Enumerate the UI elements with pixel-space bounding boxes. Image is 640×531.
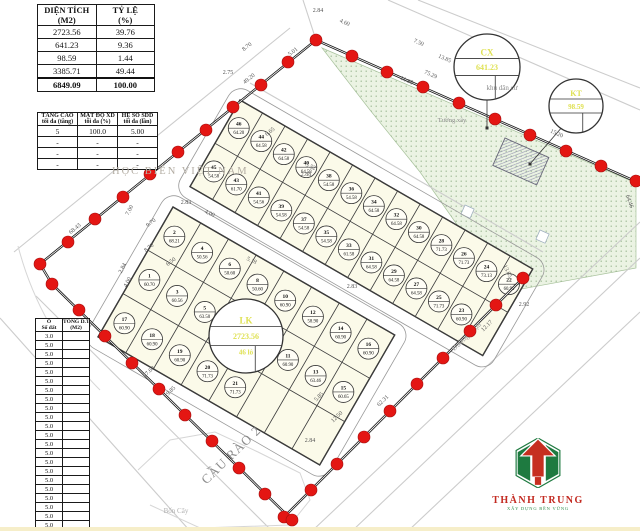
lot-label: 160.70 (139, 269, 160, 290)
table-cell: 5.0 (36, 368, 63, 377)
svg-text:71.73: 71.73 (459, 261, 470, 266)
svg-text:60.90: 60.90 (280, 304, 291, 309)
street-label: khu dân cư (486, 84, 517, 92)
lot-label: 360.56 (167, 285, 188, 306)
boundary-dot (489, 113, 501, 125)
svg-text:30: 30 (416, 226, 422, 232)
table-cell (63, 341, 90, 350)
svg-text:42: 42 (281, 148, 287, 154)
table-cell: 5.0 (36, 476, 63, 485)
lot-label: 3754.58 (293, 213, 314, 234)
boundary-dot (437, 352, 449, 364)
svg-text:64.58: 64.58 (368, 209, 379, 214)
svg-text:KT: KT (570, 89, 582, 98)
boundary-dot (200, 124, 212, 136)
table-cell (63, 386, 90, 395)
svg-text:50.56: 50.56 (197, 256, 208, 261)
table-row: --- (38, 137, 158, 148)
table-cell: 5.0 (36, 512, 63, 521)
table-row: 5.0 (36, 512, 90, 521)
table-cell: 6849.09 (38, 78, 97, 92)
svg-text:3: 3 (176, 289, 179, 295)
table-cell: 100.00 (96, 78, 155, 92)
table-row: 5.0 (36, 485, 90, 494)
table-cell (63, 458, 90, 467)
boundary-dot (233, 462, 245, 474)
svg-text:39: 39 (279, 204, 285, 210)
table-cell (63, 359, 90, 368)
table-cell: 5.0 (36, 422, 63, 431)
table-row: 5.0 (36, 377, 90, 386)
svg-text:68.21: 68.21 (169, 240, 180, 245)
column-header: TỔNG D.TÍCH(M2) (63, 319, 90, 332)
table-cell: 5.0 (36, 440, 63, 449)
lot-label: 4664.20 (228, 118, 249, 139)
svg-text:60.90: 60.90 (283, 363, 294, 368)
dimension-label: 75.29 (423, 70, 438, 81)
table-cell: - (78, 137, 118, 148)
column-header: DIỆN TÍCH(M2) (38, 5, 97, 26)
table-cell: 5.0 (36, 485, 63, 494)
dimension-label: 2.84 (305, 438, 316, 444)
svg-text:44: 44 (259, 135, 265, 141)
lot-label: 2671.73 (453, 248, 474, 269)
table-row: 641.239.36 (38, 39, 155, 52)
svg-text:64.58: 64.58 (388, 278, 399, 283)
svg-text:33: 33 (346, 243, 352, 249)
boundary-dot (524, 129, 536, 141)
street-label: CẦU RÀO 2 (198, 423, 264, 487)
svg-text:LK: LK (239, 315, 252, 325)
svg-text:71.73: 71.73 (434, 304, 445, 309)
road-line (418, 0, 640, 88)
svg-text:60.90: 60.90 (174, 358, 185, 363)
table-cell: 5.00 (118, 126, 158, 137)
svg-text:27: 27 (414, 282, 420, 288)
lot-label: 2571.73 (428, 291, 449, 312)
bottom-strip (0, 527, 640, 531)
table-row: 5.0 (36, 494, 90, 503)
svg-text:18: 18 (149, 333, 155, 339)
svg-text:60.90: 60.90 (335, 336, 346, 341)
svg-text:32: 32 (394, 213, 400, 219)
table-row: 5.0 (36, 422, 90, 431)
boundary-dot (153, 383, 165, 395)
table-cell: 5.0 (36, 404, 63, 413)
boundary-dot (305, 484, 317, 496)
logo-tagline: XÂY DỰNG BỀN VỮNG (478, 506, 598, 511)
boundary-dot (282, 56, 294, 68)
svg-text:CX: CX (481, 47, 494, 57)
dimension-label: 7.50 (412, 38, 424, 48)
svg-text:20: 20 (205, 365, 211, 371)
boundary-dot (126, 357, 138, 369)
table-row: 5.0 (36, 440, 90, 449)
lot-label: 2171.73 (225, 377, 246, 398)
boundary-dot (172, 146, 184, 158)
column-header: ÔSố đất (36, 319, 63, 332)
svg-text:46: 46 (236, 122, 242, 128)
lot-label: 4154.56 (248, 187, 269, 208)
svg-text:71.73: 71.73 (436, 248, 447, 253)
svg-text:14: 14 (338, 326, 344, 332)
boundary-dot (453, 97, 465, 109)
svg-text:61.58: 61.58 (343, 252, 354, 257)
table-cell (63, 431, 90, 440)
lot-label: 1060.90 (275, 290, 296, 311)
lot-label: 3654.58 (341, 183, 362, 204)
table-cell: - (118, 137, 158, 148)
lot-label: 850.60 (247, 274, 268, 295)
svg-text:16: 16 (366, 342, 372, 348)
dimension-label: 2.84 (118, 262, 128, 274)
table-row: 5.0 (36, 503, 90, 512)
svg-text:43: 43 (234, 178, 240, 184)
svg-text:31: 31 (369, 256, 375, 262)
table-cell: 5.0 (36, 341, 63, 350)
table-total-row: 6849.09100.00 (38, 78, 155, 92)
table-row: 5.0 (36, 359, 90, 368)
dimension-label: 9.70 (145, 218, 157, 229)
svg-text:41: 41 (256, 191, 262, 197)
svg-text:64.58: 64.58 (366, 265, 377, 270)
dimension-label: 8.70 (241, 42, 253, 53)
svg-text:54.56: 54.56 (253, 200, 264, 205)
table-cell: 5.0 (36, 458, 63, 467)
lot-label: 1560.65 (333, 381, 354, 402)
svg-text:4: 4 (201, 246, 204, 252)
lot-label: 2964.58 (383, 265, 404, 286)
boundary-dot (179, 409, 191, 421)
boundary-dot (89, 213, 101, 225)
svg-text:60.70: 60.70 (144, 283, 155, 288)
svg-text:60.56: 60.56 (172, 299, 183, 304)
table-cell: 641.23 (38, 39, 97, 52)
table-row: 5.0 (36, 458, 90, 467)
svg-text:64.58: 64.58 (256, 144, 267, 149)
lot-label: 3464.58 (363, 196, 384, 217)
svg-text:64.58: 64.58 (278, 157, 289, 162)
svg-text:29: 29 (391, 269, 397, 275)
planning-table: TẦNG CAOtối đa (tầng)MẬT ĐỘ XDtối đa (%)… (37, 112, 158, 170)
svg-text:23: 23 (459, 308, 465, 314)
table-cell: 3385.71 (38, 65, 97, 79)
table-cell: 5.0 (36, 413, 63, 422)
svg-text:6: 6 (228, 262, 231, 268)
boundary-dot (384, 405, 396, 417)
column-header: MẬT ĐỘ XDtối đa (%) (78, 113, 118, 126)
table-row: --- (38, 148, 158, 159)
boundary-dot (381, 66, 393, 78)
table-cell (63, 476, 90, 485)
svg-text:2: 2 (173, 230, 176, 236)
svg-text:60.90: 60.90 (363, 352, 374, 357)
lot-label: 3361.58 (338, 239, 359, 260)
table-cell: 5.0 (36, 431, 63, 440)
table-cell: 5 (38, 126, 78, 137)
dimension-label: 13.85 (437, 54, 452, 65)
svg-text:13: 13 (313, 369, 319, 375)
svg-text:38: 38 (326, 174, 332, 180)
table-cell (63, 503, 90, 512)
boundary-dot (517, 272, 529, 284)
table-cell: 5.0 (36, 377, 63, 386)
table-cell: 5.0 (36, 449, 63, 458)
boundary-dot (286, 514, 298, 526)
svg-text:15: 15 (341, 385, 347, 391)
table-cell: - (38, 148, 78, 159)
table-cell: 5.0 (36, 503, 63, 512)
kt-circle: KT98.59 (549, 79, 603, 133)
table-row: 5.0 (36, 431, 90, 440)
table-cell (63, 368, 90, 377)
table-cell (63, 413, 90, 422)
table-row: 5.0 (36, 350, 90, 359)
svg-text:25: 25 (436, 295, 442, 301)
boundary-dot (46, 278, 58, 290)
table-cell (63, 512, 90, 521)
boundary-dot (227, 101, 239, 113)
table-cell (63, 332, 90, 341)
svg-text:50.60: 50.60 (224, 272, 235, 277)
lot-label: 1760.90 (114, 313, 135, 334)
boundary-dot (464, 325, 476, 337)
dimension-label: 49.20 (242, 73, 256, 86)
table-cell: 5.0 (36, 350, 63, 359)
svg-text:34: 34 (371, 200, 377, 206)
lot-label: 2360.90 (451, 304, 472, 325)
table-cell: 5.0 (36, 395, 63, 404)
dimension-label: 2.75 (223, 70, 234, 76)
dimension-label: 4.00 (203, 209, 215, 219)
svg-text:11: 11 (285, 353, 290, 359)
dimension-label: 2.83 (181, 200, 192, 206)
table-cell: - (38, 159, 78, 170)
svg-text:54.58: 54.58 (298, 226, 309, 231)
dimension-label: 2.92 (519, 302, 530, 308)
boundary-dot (346, 50, 358, 62)
dimension-label: 4.60 (338, 18, 350, 28)
svg-text:24: 24 (484, 265, 490, 271)
lot-label: 2473.13 (476, 261, 497, 282)
road-line (303, 0, 316, 40)
svg-text:63.46: 63.46 (310, 379, 321, 384)
boundary-dot (411, 378, 423, 390)
table-cell (63, 485, 90, 494)
lot-label: 4361.70 (226, 174, 247, 195)
boundary-dot (34, 258, 46, 270)
svg-text:54.58: 54.58 (323, 183, 334, 188)
svg-text:61.70: 61.70 (231, 187, 242, 192)
svg-text:60.90: 60.90 (147, 342, 158, 347)
table-row: 5.0 (36, 467, 90, 476)
svg-text:21: 21 (232, 381, 238, 387)
boundary-dot (255, 79, 267, 91)
lot-label: 1860.90 (142, 329, 163, 350)
table-row: 5.0 (36, 395, 90, 404)
boundary-dot (117, 191, 129, 203)
table-cell: - (38, 137, 78, 148)
lot-label: 3854.58 (318, 170, 339, 191)
boundary-dot (595, 160, 607, 172)
table-row: 5.0 (36, 476, 90, 485)
boundary-dot (62, 236, 74, 248)
svg-text:36: 36 (349, 187, 355, 193)
svg-text:54.58: 54.58 (276, 213, 287, 218)
boundary-dot (310, 34, 322, 46)
street-label: Tường xây (438, 117, 467, 124)
table-cell (63, 404, 90, 413)
svg-text:35: 35 (324, 230, 330, 236)
lot-label: 563.50 (194, 301, 215, 322)
table-row: 5.0 (36, 386, 90, 395)
svg-text:19: 19 (177, 349, 183, 355)
table-row: 5.0 (36, 341, 90, 350)
table-row: 5.0 (36, 368, 90, 377)
svg-text:37: 37 (301, 217, 307, 223)
table-cell: - (118, 148, 158, 159)
logo-icon (515, 438, 561, 488)
table-cell: 39.76 (96, 26, 155, 39)
table-cell: 100.0 (78, 126, 118, 137)
lot-label: 1960.90 (169, 345, 190, 366)
boundary-dot (358, 431, 370, 443)
dimension-label: 2.83 (347, 284, 358, 290)
boundary-dot (417, 81, 429, 93)
table-row: 2723.5639.76 (38, 26, 155, 39)
lot-label: 3264.58 (386, 209, 407, 230)
svg-text:54.58: 54.58 (346, 196, 357, 201)
table-cell: 98.59 (38, 52, 97, 65)
table-cell: - (78, 148, 118, 159)
svg-text:10: 10 (282, 294, 288, 300)
column-header: TẦNG CAOtối đa (tầng) (38, 113, 78, 126)
dimension-label: 2.84 (313, 8, 324, 14)
svg-text:71.73: 71.73 (230, 390, 241, 395)
table-cell (63, 494, 90, 503)
lk-circle: LK2723.5646 lô (209, 299, 283, 373)
lot-label: 2764.58 (406, 278, 427, 299)
svg-text:60.90: 60.90 (456, 317, 467, 322)
dimension-label: 15.20 (549, 129, 564, 140)
table-row: 3.0 (36, 332, 90, 341)
table-cell: 5.0 (36, 467, 63, 476)
svg-text:63.50: 63.50 (199, 315, 210, 320)
logo-company-name: THÀNH TRUNG (478, 495, 598, 506)
leader-anchor (486, 127, 489, 130)
table-cell: 2723.56 (38, 26, 97, 39)
boundary-dot (206, 435, 218, 447)
svg-text:60.65: 60.65 (338, 395, 349, 400)
dimension-label: 7.00 (125, 204, 135, 216)
table-cell: 49.44 (96, 65, 155, 79)
svg-text:54.58: 54.58 (321, 239, 332, 244)
table-row: 5.0 (36, 449, 90, 458)
lot-label: 4264.58 (273, 144, 294, 165)
svg-text:641.23: 641.23 (476, 63, 498, 72)
svg-text:73.13: 73.13 (481, 274, 492, 279)
svg-text:46 lô: 46 lô (239, 349, 254, 357)
svg-text:28: 28 (439, 239, 445, 245)
table-cell (63, 377, 90, 386)
boundary-dot (259, 488, 271, 500)
table-cell (63, 395, 90, 404)
boundary-dot (73, 304, 85, 316)
area-summary-table: DIỆN TÍCH(M2)TỶ LỆ(%)2723.5639.76641.239… (37, 4, 155, 92)
lot-label: 3164.58 (361, 252, 382, 273)
leader-anchor (529, 163, 532, 166)
table-cell (63, 350, 90, 359)
svg-text:12: 12 (310, 310, 316, 316)
svg-text:64.58: 64.58 (413, 235, 424, 240)
column-header: HỆ SỐ SDDtối đa (lần) (118, 113, 158, 126)
table-cell: 5.0 (36, 386, 63, 395)
lot-label: 3554.58 (316, 226, 337, 247)
svg-text:60.90: 60.90 (119, 326, 130, 331)
boundary-dot (630, 175, 640, 187)
lot-label: 1460.90 (330, 322, 351, 343)
svg-text:71.73: 71.73 (202, 374, 213, 379)
campus-label: HỌC BIỂN VIỆT NAM (112, 166, 249, 177)
lot-label: 268.21 (164, 226, 185, 247)
svg-text:64.58: 64.58 (391, 222, 402, 227)
svg-text:26: 26 (461, 252, 467, 258)
table-cell (63, 449, 90, 458)
svg-text:64.58: 64.58 (411, 291, 422, 296)
table-cell: 9.36 (96, 39, 155, 52)
svg-text:50.60: 50.60 (252, 288, 263, 293)
table-cell: 5.0 (36, 494, 63, 503)
table-cell: 3.0 (36, 332, 63, 341)
street-label: Bốn Cây (164, 507, 189, 515)
table-cell (63, 467, 90, 476)
boundary-dot (560, 145, 572, 157)
table-row: 3385.7149.44 (38, 65, 155, 79)
company-logo: THÀNH TRUNG XÂY DỰNG BỀN VỮNG (478, 438, 598, 511)
lot-label: 1258.90 (302, 306, 323, 327)
svg-text:1: 1 (148, 273, 151, 279)
lot-label: 450.56 (192, 242, 213, 263)
table-cell (63, 440, 90, 449)
svg-text:8: 8 (256, 278, 259, 284)
boundary-dot (331, 458, 343, 470)
lot-label: 1160.90 (277, 349, 298, 370)
svg-text:58.90: 58.90 (308, 320, 319, 325)
lot-label: 2871.73 (431, 235, 452, 256)
lot-label: 1660.90 (358, 338, 379, 359)
table-row: 5100.05.00 (38, 126, 158, 137)
svg-text:2723.56: 2723.56 (233, 332, 259, 341)
lot-list-table: ÔSố đấtTỔNG D.TÍCH(M2)3.05.05.05.05.05.0… (35, 318, 90, 530)
lot-label: 3064.58 (408, 222, 429, 243)
lot-label: 2071.73 (197, 361, 218, 382)
lot-label: 1363.46 (305, 365, 326, 386)
column-header: TỶ LỆ(%) (96, 5, 155, 26)
lot-label: 650.60 (219, 258, 240, 279)
table-cell (63, 422, 90, 431)
table-row: 98.591.44 (38, 52, 155, 65)
lot-label: 3954.58 (271, 200, 292, 221)
table-row: 5.0 (36, 413, 90, 422)
boundary-dot (490, 299, 502, 311)
table-cell: 5.0 (36, 359, 63, 368)
table-row: 5.0 (36, 404, 90, 413)
boundary-dot (99, 330, 111, 342)
svg-text:64.20: 64.20 (233, 131, 244, 136)
svg-text:5: 5 (203, 305, 206, 311)
svg-text:17: 17 (122, 317, 128, 323)
dimension-label: 2.88 (301, 172, 312, 178)
